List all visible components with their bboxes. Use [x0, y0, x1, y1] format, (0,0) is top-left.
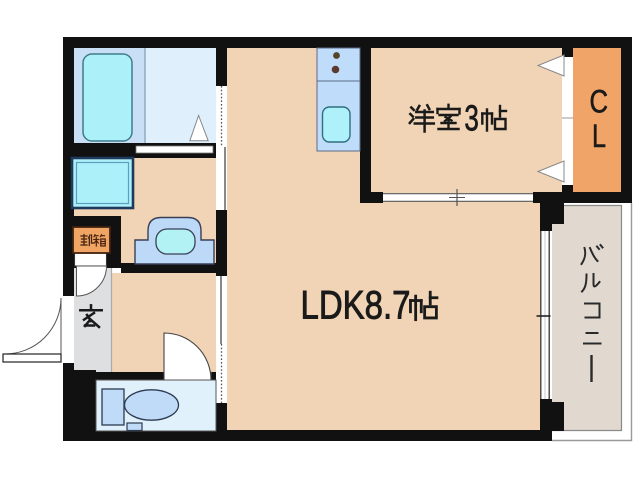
svg-text:L: L: [592, 118, 606, 154]
svg-text:C: C: [590, 84, 609, 120]
svg-text:LDK8.7: LDK8.7: [301, 284, 411, 328]
svg-text:3: 3: [464, 98, 479, 139]
